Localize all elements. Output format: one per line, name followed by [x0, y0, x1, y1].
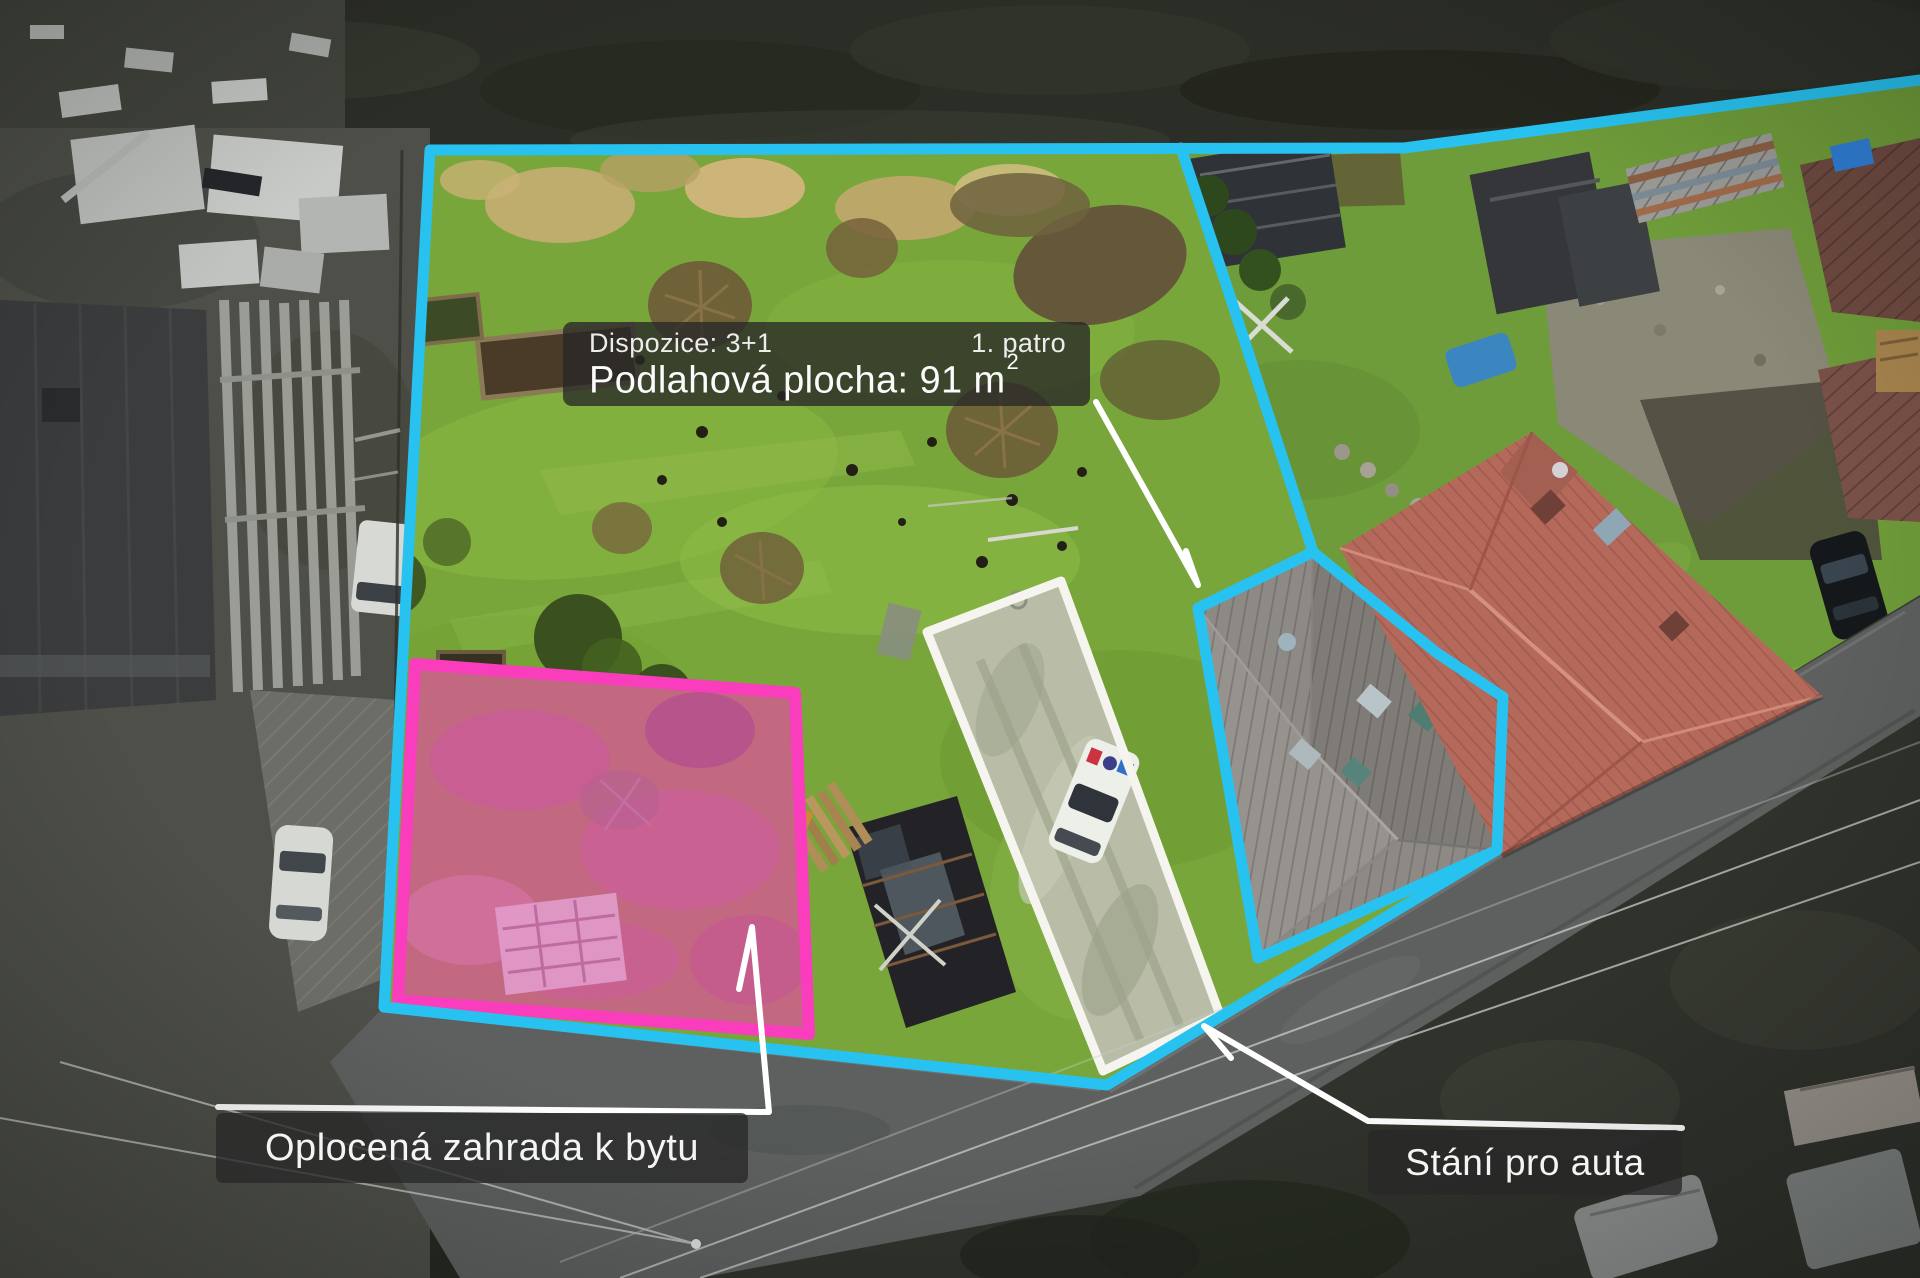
info-area-superscript: 2 [1007, 349, 1020, 374]
annotated-aerial-photo: Dispozice: 3+1 1. patro Podlahová plocha… [0, 0, 1920, 1278]
garden-label: Oplocená zahrada k bytu [216, 1113, 748, 1183]
info-box: Dispozice: 3+1 1. patro Podlahová plocha… [563, 322, 1090, 406]
aerial-scene [0, 0, 1920, 1278]
info-area: Podlahová plocha: 91 m [589, 359, 1006, 401]
vignette [0, 0, 1920, 1278]
parking-label-text: Stání pro auta [1405, 1142, 1644, 1184]
info-dispozice: Dispozice: 3+1 [589, 329, 772, 359]
parking-label: Stání pro auta [1368, 1130, 1682, 1195]
garden-label-text: Oplocená zahrada k bytu [265, 1127, 699, 1170]
